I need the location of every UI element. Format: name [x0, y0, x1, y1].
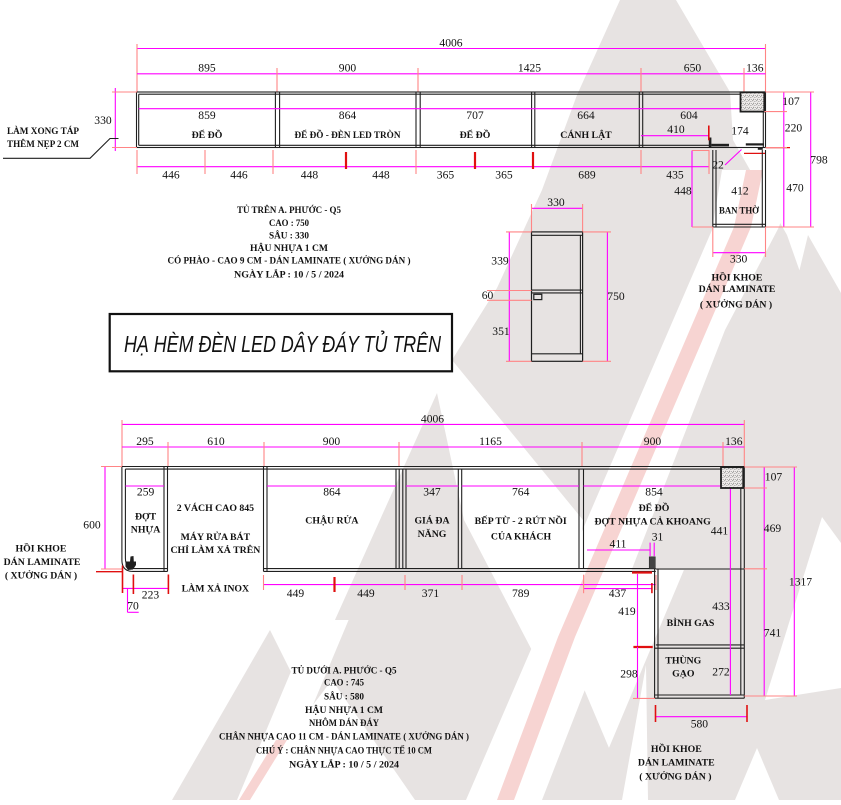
- svg-text:136: 136: [746, 61, 764, 74]
- svg-text:435: 435: [666, 168, 684, 181]
- svg-text:60: 60: [482, 289, 494, 302]
- svg-text:CAO : 745: CAO : 745: [324, 677, 364, 688]
- svg-text:( XƯỞNG DÁN ): ( XƯỞNG DÁN ): [700, 299, 772, 311]
- svg-text:689: 689: [578, 168, 596, 181]
- svg-text:272: 272: [712, 666, 730, 679]
- svg-text:107: 107: [765, 471, 783, 484]
- svg-text:437: 437: [609, 587, 627, 600]
- svg-text:410: 410: [667, 123, 685, 136]
- svg-text:330: 330: [94, 114, 112, 127]
- svg-text:4006: 4006: [439, 37, 462, 50]
- svg-text:750: 750: [607, 290, 625, 303]
- svg-text:220: 220: [785, 122, 803, 135]
- svg-text:764: 764: [512, 486, 530, 499]
- svg-text:LÀM XẢ INOX: LÀM XẢ INOX: [182, 583, 250, 595]
- svg-text:ĐỢT NHỰA CẢ KHOANG: ĐỢT NHỰA CẢ KHOANG: [594, 516, 711, 528]
- svg-text:ĐỂ ĐỒ: ĐỂ ĐỒ: [192, 128, 223, 141]
- svg-text:NGÀY LẮP : 10 / 5 / 2024: NGÀY LẮP : 10 / 5 / 2024: [234, 268, 344, 281]
- svg-text:ĐỂ ĐỒ: ĐỂ ĐỒ: [460, 128, 491, 141]
- svg-text:2 VÁCH CAO 845: 2 VÁCH CAO 845: [177, 502, 254, 514]
- svg-text:NĂNG: NĂNG: [418, 528, 447, 540]
- svg-text:TỦ TRÊN A. PHƯỚC - Q5: TỦ TRÊN A. PHƯỚC - Q5: [237, 204, 341, 216]
- svg-text:ĐỢT: ĐỢT: [135, 512, 157, 523]
- svg-text:448: 448: [674, 185, 692, 198]
- svg-text:741: 741: [764, 627, 782, 640]
- svg-text:22: 22: [712, 159, 724, 172]
- svg-text:GẠO: GẠO: [672, 669, 695, 680]
- svg-text:446: 446: [230, 168, 248, 181]
- svg-text:854: 854: [645, 486, 663, 499]
- svg-text:CHẬU RỬA: CHẬU RỬA: [305, 514, 358, 527]
- svg-text:441: 441: [711, 525, 729, 538]
- svg-text:CHÂN NHỰA CAO 11 CM - DÁN LAMI: CHÂN NHỰA CAO 11 CM - DÁN LAMINATE ( XƯỞ…: [219, 730, 469, 742]
- svg-text:NHÔM DÁN ĐÁY: NHÔM DÁN ĐÁY: [309, 716, 379, 729]
- svg-text:MÁY RỬA BÁT: MÁY RỬA BÁT: [181, 531, 251, 543]
- svg-text:295: 295: [136, 435, 154, 448]
- svg-text:469: 469: [764, 522, 782, 535]
- svg-text:1317: 1317: [789, 576, 812, 589]
- svg-text:DÁN LAMINATE: DÁN LAMINATE: [638, 757, 715, 769]
- svg-text:DÁN LAMINATE: DÁN LAMINATE: [4, 556, 81, 568]
- svg-text:864: 864: [323, 486, 341, 499]
- svg-text:HỒI KHOE: HỒI KHOE: [16, 542, 67, 555]
- svg-text:470: 470: [786, 182, 804, 195]
- svg-text:789: 789: [512, 587, 530, 600]
- svg-text:70: 70: [127, 600, 139, 613]
- svg-text:650: 650: [684, 61, 702, 74]
- svg-text:365: 365: [495, 168, 513, 181]
- svg-text:CHỈ LÀM XẢ TRÊN: CHỈ LÀM XẢ TRÊN: [170, 544, 260, 556]
- svg-text:604: 604: [680, 109, 698, 122]
- svg-text:BAN THỜ: BAN THỜ: [719, 205, 759, 217]
- svg-text:HỒI KHOE: HỒI KHOE: [712, 271, 763, 284]
- svg-text:449: 449: [287, 587, 305, 600]
- svg-text:580: 580: [691, 718, 709, 731]
- svg-text:( XƯỞNG DÁN ): ( XƯỞNG DÁN ): [639, 771, 711, 783]
- svg-text:THÙNG: THÙNG: [665, 655, 701, 667]
- svg-text:448: 448: [301, 168, 319, 181]
- svg-text:365: 365: [437, 168, 455, 181]
- svg-text:174: 174: [731, 125, 749, 138]
- svg-text:HẬU NHỰA 1 CM: HẬU NHỰA 1 CM: [250, 241, 328, 254]
- svg-text:347: 347: [423, 486, 441, 499]
- svg-text:371: 371: [422, 587, 440, 600]
- svg-text:900: 900: [323, 435, 341, 448]
- svg-text:895: 895: [198, 61, 216, 74]
- svg-text:SÂU : 580: SÂU : 580: [324, 691, 364, 703]
- svg-text:1425: 1425: [518, 61, 541, 74]
- svg-text:610: 610: [207, 435, 225, 448]
- svg-text:CỦA KHÁCH: CỦA KHÁCH: [491, 531, 552, 543]
- svg-text:223: 223: [142, 589, 160, 602]
- svg-text:136: 136: [725, 435, 743, 448]
- svg-text:664: 664: [577, 109, 595, 122]
- svg-text:864: 864: [339, 109, 357, 122]
- svg-text:448: 448: [372, 168, 390, 181]
- svg-text:351: 351: [492, 325, 510, 338]
- svg-text:GIÁ ĐA: GIÁ ĐA: [414, 515, 449, 527]
- svg-text:900: 900: [339, 61, 357, 74]
- svg-text:600: 600: [83, 519, 101, 532]
- svg-text:HẬU NHỰA 1 CM: HẬU NHỰA 1 CM: [305, 703, 383, 716]
- svg-text:31: 31: [652, 531, 664, 544]
- svg-text:NHỰA: NHỰA: [131, 525, 161, 536]
- svg-text:900: 900: [644, 435, 662, 448]
- svg-text:1165: 1165: [479, 435, 502, 448]
- svg-text:CÁNH LẬT: CÁNH LẬT: [560, 128, 612, 141]
- svg-text:339: 339: [491, 255, 509, 268]
- svg-text:BÌNH GAS: BÌNH GAS: [667, 617, 715, 629]
- svg-text:411: 411: [610, 538, 627, 551]
- svg-text:412: 412: [731, 185, 749, 198]
- svg-text:433: 433: [712, 600, 730, 613]
- svg-text:449: 449: [357, 587, 375, 600]
- svg-text:ĐỂ ĐỒ - ĐÈN LED TRÒN: ĐỂ ĐỒ - ĐÈN LED TRÒN: [295, 128, 401, 141]
- svg-text:HẠ HÈM ĐÈN LED DÂY ĐÁY TỦ TRÊN: HẠ HÈM ĐÈN LED DÂY ĐÁY TỦ TRÊN: [124, 329, 441, 357]
- svg-text:LÀM XONG TÁP: LÀM XONG TÁP: [7, 125, 79, 137]
- svg-text:SÂU : 330: SÂU : 330: [269, 230, 309, 242]
- svg-text:THÊM NẸP 2 CM: THÊM NẸP 2 CM: [7, 138, 79, 150]
- svg-text:107: 107: [782, 95, 800, 108]
- svg-text:CHÚ Ý : CHÂN NHỰA CAO THỰC TẾ: CHÚ Ý : CHÂN NHỰA CAO THỰC TẾ 10 CM: [256, 744, 432, 757]
- svg-text:BẾP TỪ - 2 RÚT NỒI: BẾP TỪ - 2 RÚT NỒI: [475, 514, 567, 527]
- svg-text:330: 330: [547, 196, 565, 209]
- svg-text:DÁN LAMINATE: DÁN LAMINATE: [699, 283, 776, 295]
- svg-text:4006: 4006: [421, 412, 444, 425]
- svg-text:446: 446: [162, 168, 180, 181]
- svg-text:298: 298: [620, 668, 638, 681]
- svg-text:TỦ DƯỚI A. PHƯỚC - Q5: TỦ DƯỚI A. PHƯỚC - Q5: [292, 664, 397, 676]
- svg-text:CAO : 750: CAO : 750: [269, 218, 309, 229]
- svg-text:259: 259: [137, 486, 155, 499]
- svg-text:798: 798: [810, 154, 828, 167]
- svg-text:330: 330: [730, 253, 748, 266]
- svg-text:NGÀY LẮP : 10 / 5 / 2024: NGÀY LẮP : 10 / 5 / 2024: [289, 758, 399, 771]
- svg-text:419: 419: [618, 605, 636, 618]
- svg-text:859: 859: [198, 109, 216, 122]
- svg-text:HỒI KHOE: HỒI KHOE: [651, 742, 702, 755]
- svg-text:CÓ PHÀO - CAO 9 CM - DÁN LAMIN: CÓ PHÀO - CAO 9 CM - DÁN LAMINATE ( XƯỞN…: [168, 255, 411, 267]
- svg-text:707: 707: [466, 109, 484, 122]
- svg-text:( XƯỞNG DÁN ): ( XƯỞNG DÁN ): [5, 570, 77, 582]
- svg-text:ĐỂ ĐỒ: ĐỂ ĐỒ: [639, 501, 670, 514]
